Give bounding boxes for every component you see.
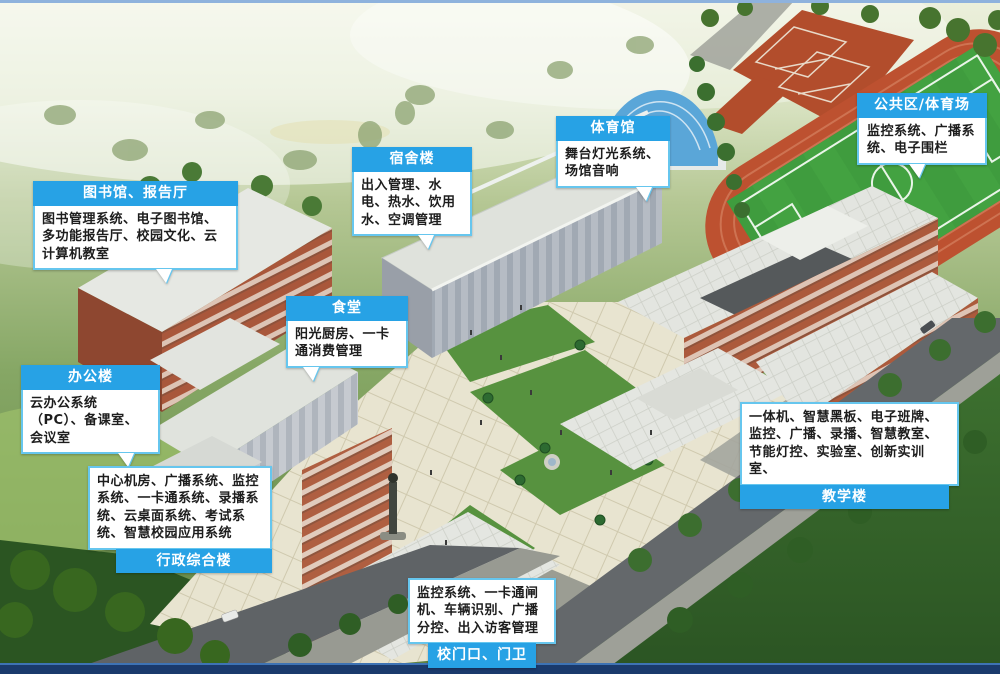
callout-library-title: 图书馆、报告厅 — [33, 181, 238, 206]
callout-gym-body: 舞台灯光系统、场馆音响 — [556, 141, 670, 188]
callout-teaching-title: 教学楼 — [740, 485, 949, 510]
callout-public-stadium-title: 公共区/体育场 — [857, 93, 987, 118]
callout-admin: 中心机房、广播系统、监控系统、一卡通系统、录播系统、云桌面系统、考试系统、智慧校… — [88, 466, 272, 573]
callout-admin-title: 行政综合楼 — [116, 549, 272, 574]
callout-tail-icon — [418, 235, 434, 249]
callout-public-stadium: 公共区/体育场 监控系统、广播系统、电子围栏 — [857, 93, 987, 165]
callout-dormitory: 宿舍楼 出入管理、水电、热水、饮用水、空调管理 — [352, 147, 472, 236]
top-edge-line — [0, 0, 1000, 3]
callout-gate-title: 校门口、门卫 — [428, 643, 536, 668]
callout-office: 办公楼 云办公系统（PC）、备课室、会议室 — [21, 365, 160, 454]
callout-gym: 体育馆 舞台灯光系统、场馆音响 — [556, 116, 670, 188]
callout-tail-icon — [636, 187, 652, 201]
callout-canteen-title: 食堂 — [286, 296, 408, 321]
callout-library-body: 图书管理系统、电子图书馆、多功能报告厅、校园文化、云计算机教室 — [33, 206, 238, 270]
callout-office-title: 办公楼 — [21, 365, 160, 390]
callout-teaching-body: 一体机、智慧黑板、电子班牌、监控、广播、录播、智慧教室、节能灯控、实验室、创新实… — [740, 402, 959, 486]
callout-tail-icon — [303, 367, 319, 381]
callout-teaching: 一体机、智慧黑板、电子班牌、监控、广播、录播、智慧教室、节能灯控、实验室、创新实… — [740, 402, 959, 509]
callout-public-stadium-body: 监控系统、广播系统、电子围栏 — [857, 118, 987, 165]
callout-tail-icon — [156, 269, 172, 283]
callout-dormitory-title: 宿舍楼 — [352, 147, 472, 172]
callout-admin-body: 中心机房、广播系统、监控系统、一卡通系统、录播系统、云桌面系统、考试系统、智慧校… — [88, 466, 272, 550]
callout-gate-body: 监控系统、一卡通闸机、车辆识别、广播分控、出入访客管理 — [408, 578, 556, 644]
callout-office-body: 云办公系统（PC）、备课室、会议室 — [21, 390, 160, 454]
callout-tail-icon — [118, 453, 134, 467]
callout-canteen: 食堂 阳光厨房、一卡通消费管理 — [286, 296, 408, 368]
callout-tail-icon — [909, 164, 925, 178]
callout-library: 图书馆、报告厅 图书管理系统、电子图书馆、多功能报告厅、校园文化、云计算机教室 — [33, 181, 238, 270]
callout-canteen-body: 阳光厨房、一卡通消费管理 — [286, 321, 408, 368]
callout-gate: 监控系统、一卡通闸机、车辆识别、广播分控、出入访客管理 校门口、门卫 — [408, 578, 556, 668]
callout-gym-title: 体育馆 — [556, 116, 670, 141]
callout-dormitory-body: 出入管理、水电、热水、饮用水、空调管理 — [352, 172, 472, 236]
